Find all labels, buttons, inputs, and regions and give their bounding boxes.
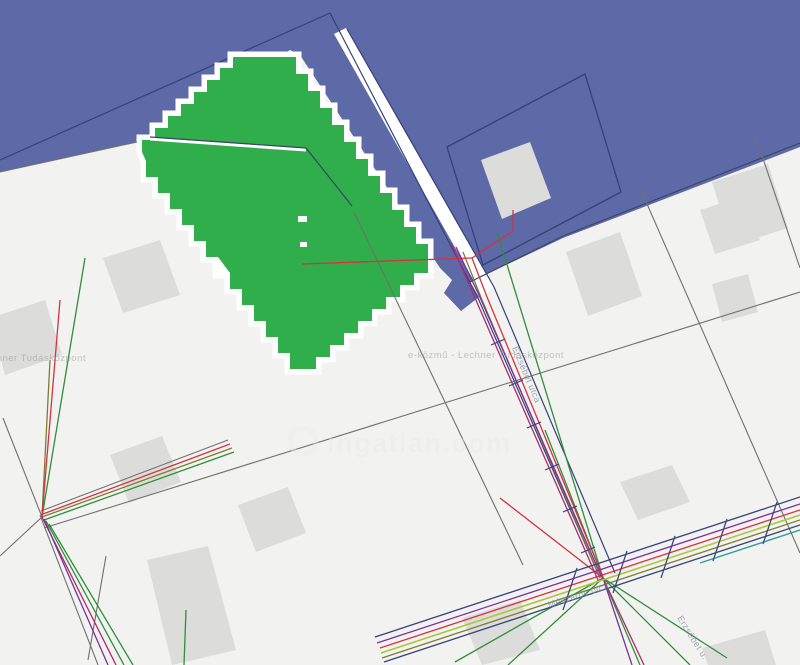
- tiled-watermark-center: e-közmű - Lechner Tudásközpont: [408, 350, 564, 361]
- map-canvas[interactable]: e-közmű - Lechner Tudásközpont e-közmű -…: [0, 0, 800, 665]
- map-viewport: e-közmű - Lechner Tudásközpont e-közmű -…: [0, 0, 800, 665]
- tiled-watermark-left: e-közmű - Lechner Tudásközpont: [0, 353, 86, 364]
- brand-watermark-text: ingatlan.com: [327, 428, 512, 458]
